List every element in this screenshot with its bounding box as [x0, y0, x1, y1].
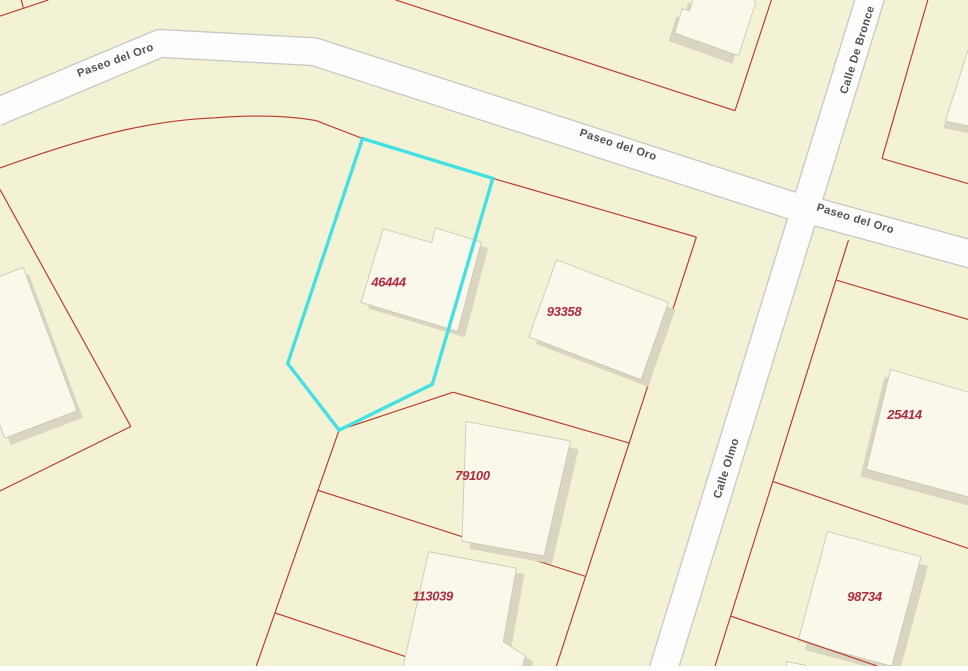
- svg-text:93358: 93358: [547, 304, 583, 319]
- svg-text:46444: 46444: [370, 275, 407, 290]
- svg-text:79100: 79100: [455, 468, 491, 483]
- svg-text:98734: 98734: [847, 589, 883, 604]
- svg-text:113039: 113039: [413, 589, 454, 604]
- svg-text:25414: 25414: [886, 407, 923, 422]
